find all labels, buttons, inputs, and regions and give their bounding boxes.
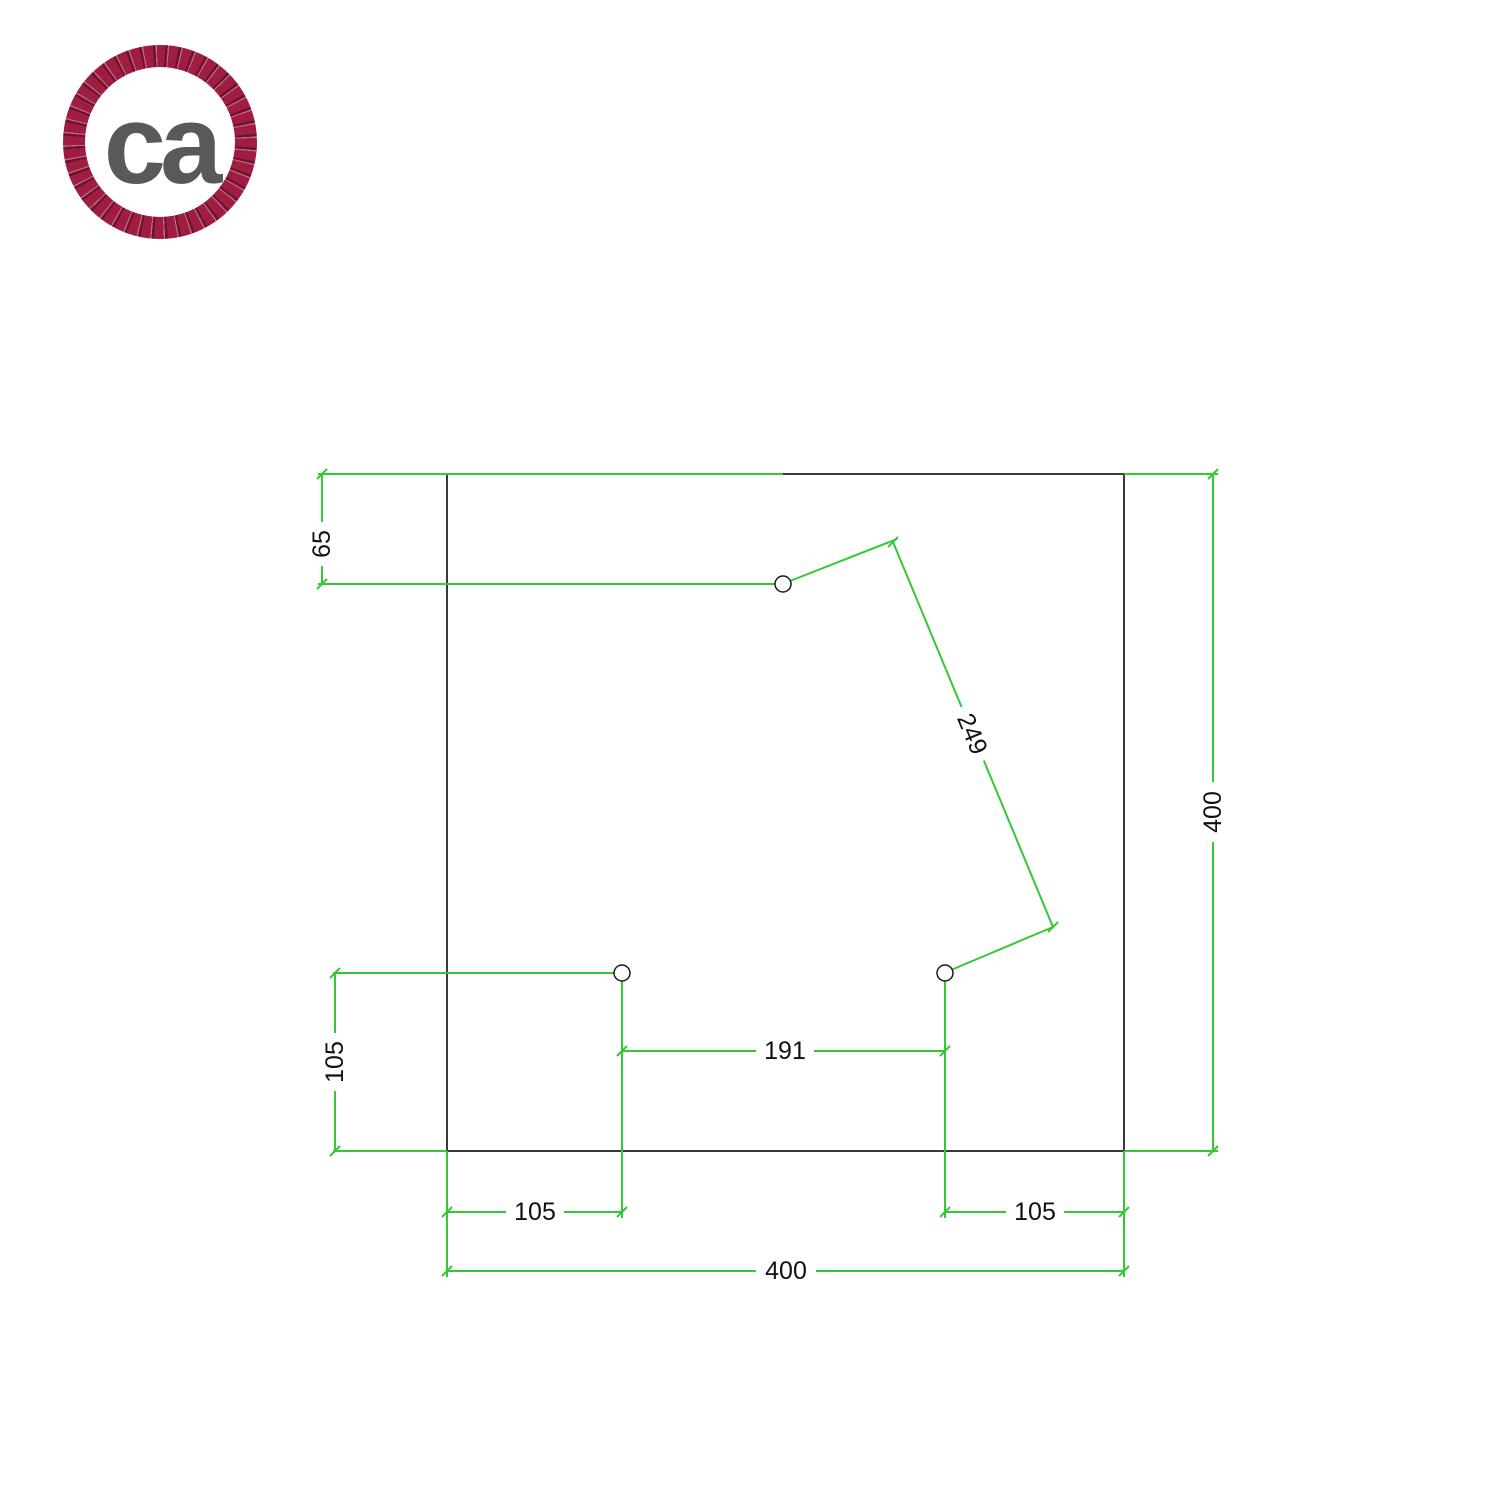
label-text: 191: [764, 1037, 806, 1065]
cable-hole-bottom-left: [614, 965, 630, 981]
label-text: 105: [1014, 1198, 1056, 1226]
dimension-diagram: 65 105 191 249 105 105 400 400: [0, 0, 1500, 1500]
label-text: 400: [765, 1257, 807, 1285]
dim-label-400-right: 400: [1199, 782, 1227, 842]
label-text: 105: [321, 1041, 349, 1083]
dim-label-105-left: 105: [321, 1033, 349, 1091]
dim-label-105-bottom-right: 105: [1006, 1198, 1064, 1226]
dim-label-65: 65: [308, 522, 336, 566]
label-text: 105: [514, 1198, 556, 1226]
dim-label-400-bottom: 400: [756, 1257, 816, 1285]
label-text: 400: [1199, 791, 1227, 833]
page: ca: [0, 0, 1500, 1500]
dim-label-105-bottom-left: 105: [506, 1198, 564, 1226]
dim-label-191: 191: [756, 1037, 814, 1065]
cable-hole-top: [775, 576, 791, 592]
label-text: 65: [308, 530, 336, 558]
cable-hole-bottom-right: [937, 965, 953, 981]
